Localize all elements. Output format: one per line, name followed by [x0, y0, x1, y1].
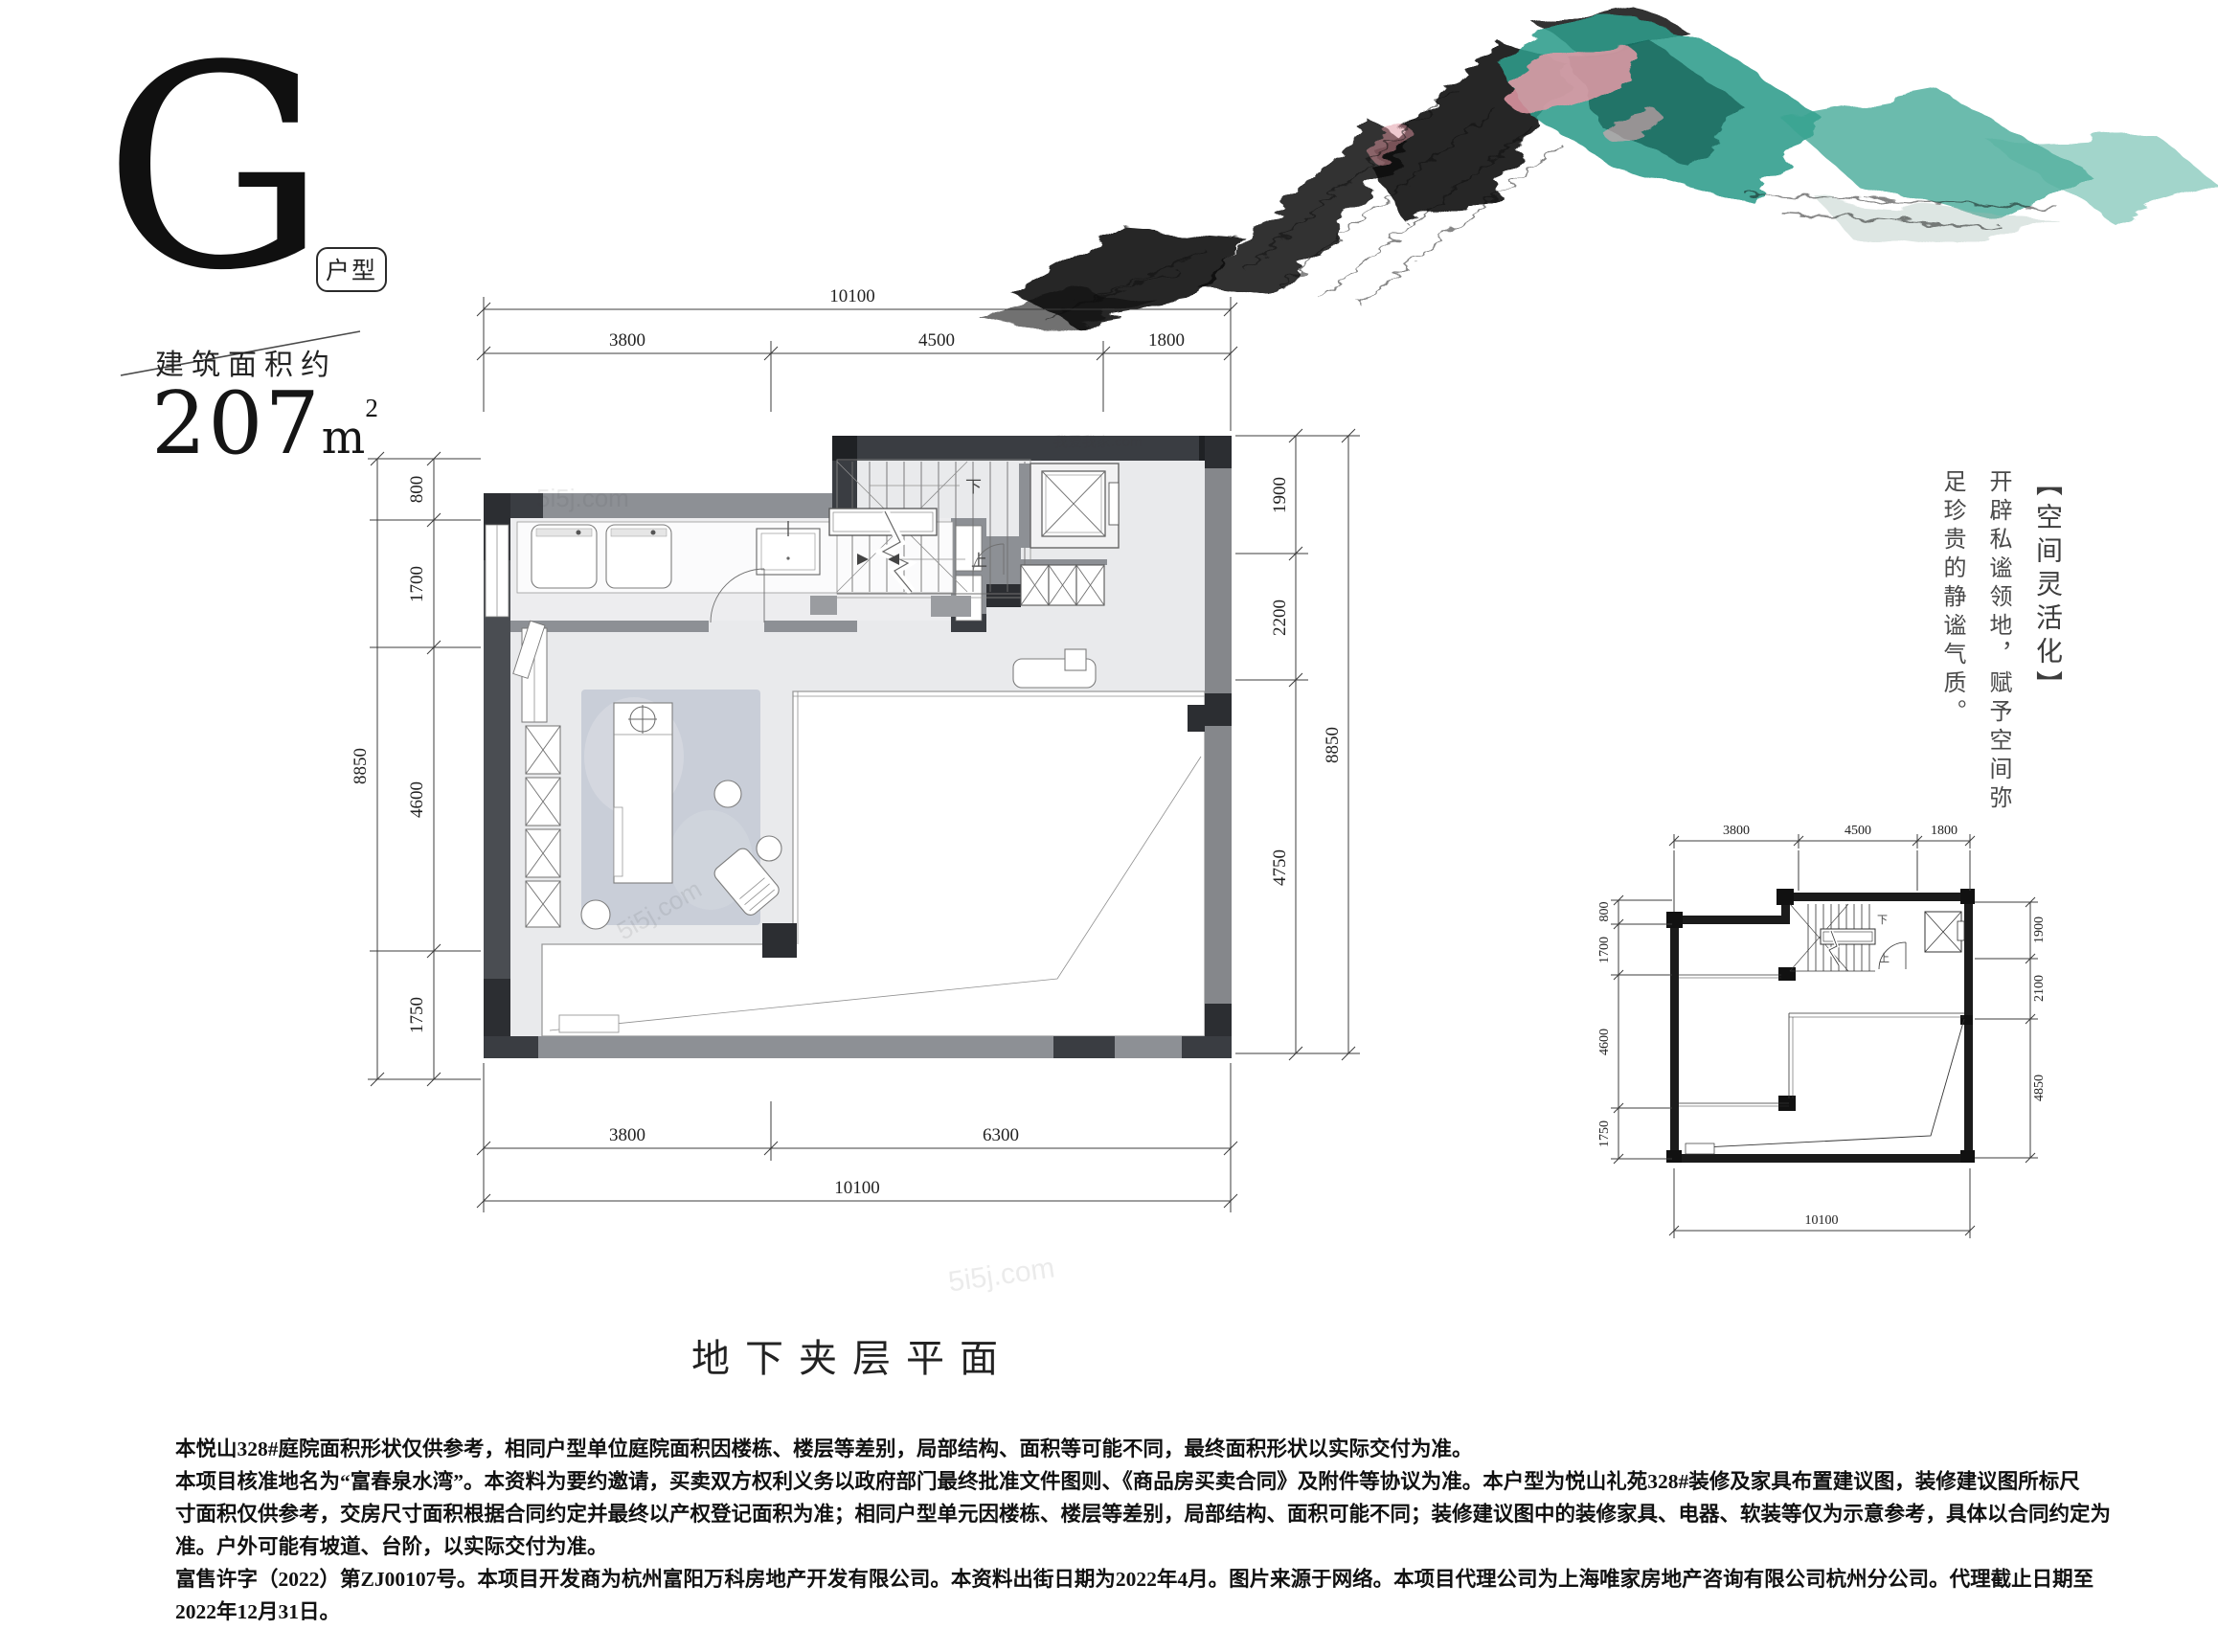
dim-label: 1700 [1597, 937, 1612, 963]
dim-label: 3800 [609, 330, 645, 351]
disclaimer-line: 2022年12月31日。 [175, 1595, 2052, 1628]
dim-label: 8850 [351, 748, 371, 784]
dim-label: 1900 [1270, 477, 1290, 513]
dim-label: 4750 [1270, 849, 1290, 886]
dim-label: 1700 [407, 566, 427, 602]
disclaimer-line: 寸面积仅供参考，交房尺寸面积根据合同约定并最终以产权登记面积为准；相同户型单元因… [175, 1498, 2052, 1530]
dim-label: 4600 [1597, 1029, 1612, 1055]
dim-bottom: 3800 6300 10100 [477, 1063, 1237, 1212]
washer-icon [532, 525, 597, 588]
stair-down-label: 下 [1877, 915, 1888, 926]
disclaimer: 本悦山328#庭院面积形状仅供参考，相同户型单位庭院面积因楼栋、楼层等差别，局部… [175, 1433, 2052, 1628]
dim-right: 1900 2200 4750 8850 [1235, 429, 1360, 1060]
dim-label: 10100 [834, 1178, 880, 1198]
dim-label: 1800 [1148, 330, 1185, 351]
dim-label: 1750 [407, 997, 427, 1033]
dim-label: 1750 [1597, 1120, 1612, 1147]
dim-label: 10100 [1805, 1213, 1839, 1228]
dim-label: 8850 [1323, 727, 1343, 763]
side-note: 【空间灵活化】 开辟私谧领地，赋予空间弥 足珍贵的静谧气质。 [1923, 469, 2066, 891]
dim-label: 3800 [1723, 824, 1750, 838]
area-number: 207 [151, 373, 322, 474]
dim-left: 8850 800 1700 4600 1750 [351, 452, 481, 1086]
table [614, 703, 672, 883]
dim-label: 800 [1597, 902, 1612, 922]
dim-label: 4850 [2032, 1075, 2047, 1101]
dim-label: 3800 [609, 1125, 645, 1145]
unit-type-letter: G [103, 29, 327, 308]
sink-icon [757, 521, 820, 575]
disclaimer-line: 本项目核准地名为“富春泉水湾”。本资料为要约邀请，买卖双方权利义务以政府部门最终… [175, 1465, 2052, 1498]
dim-label: 2100 [2032, 975, 2047, 1002]
disclaimer-line: 本悦山328#庭院面积形状仅供参考，相同户型单位庭院面积因楼栋、楼层等差别，局部… [175, 1433, 2052, 1465]
stair-down-label: 下 [965, 478, 982, 496]
dim-label: 800 [407, 476, 427, 504]
dim-top: 10100 3800 4500 1800 [477, 286, 1237, 431]
dim-label: 4600 [407, 781, 427, 818]
disclaimer-line: 富售许字（2022）第ZJ00107号。本项目开发商为杭州富阳万科房地产开发有限… [175, 1563, 2052, 1595]
pouf [714, 781, 741, 807]
dim-label: 10100 [829, 286, 875, 306]
dim-label: 2200 [1270, 600, 1290, 636]
side-note-line: 开辟私谧领地，赋予空间弥 [1981, 469, 2015, 891]
dim-label: 6300 [983, 1125, 1019, 1145]
dim-label: 4500 [918, 330, 955, 351]
pouf [581, 900, 610, 929]
pouf [757, 836, 781, 861]
shaft-panels [1021, 565, 1104, 605]
floorplan-poster: G 户型 建筑面积约 207m2 [0, 0, 2218, 1652]
dim-label: 1900 [2032, 917, 2047, 943]
disclaimer-line: 准。户外可能有坡道、台阶，以实际交付为准。 [175, 1530, 2052, 1563]
side-note-line: 足珍贵的静谧气质。 [1935, 469, 1969, 891]
side-note-title: 【空间灵活化】 [2027, 469, 2066, 891]
elevator [1019, 464, 1119, 548]
watermark: 5i5j.com [946, 1252, 1056, 1299]
washer-icon [606, 525, 671, 588]
stair-up-label: 上 [1879, 952, 1890, 964]
dim-label: 4500 [1845, 824, 1871, 838]
main-floor-plan: 下 上 [326, 268, 1437, 1226]
mini-interior: 下 上 [1679, 904, 1964, 1154]
plan-title: 地下夹层平面 [594, 1327, 1111, 1383]
